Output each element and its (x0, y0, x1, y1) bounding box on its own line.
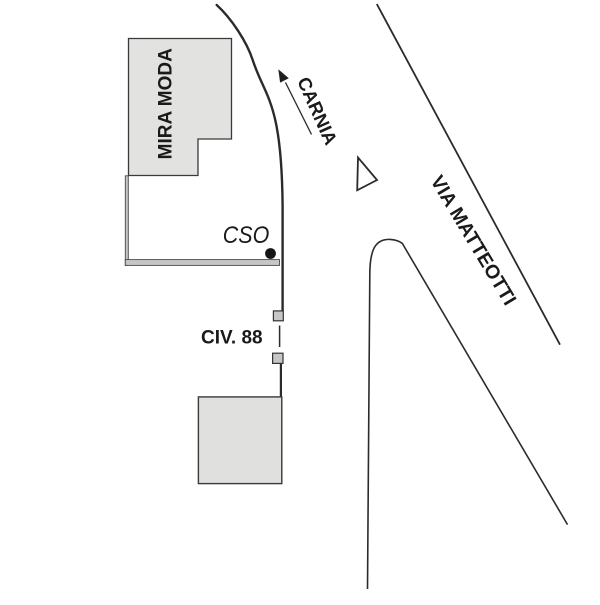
svg-text:MIRA MODA: MIRA MODA (156, 48, 177, 159)
svg-text:CSO: CSO (223, 222, 269, 249)
svg-text:CIV. 88: CIV. 88 (201, 328, 263, 349)
